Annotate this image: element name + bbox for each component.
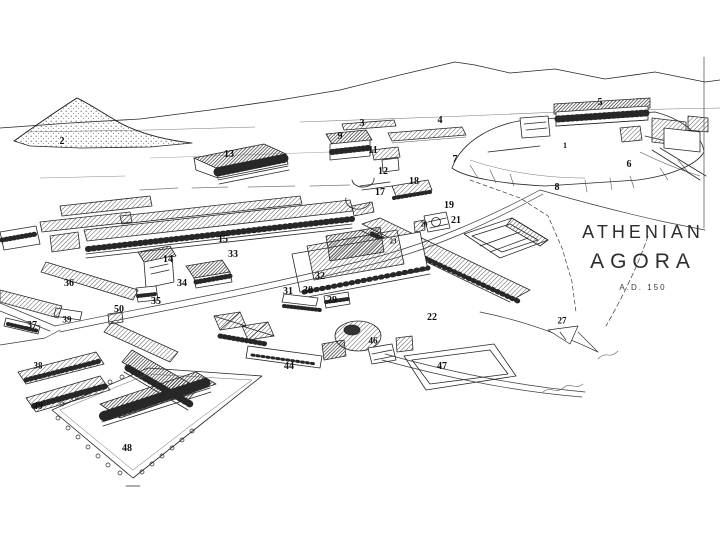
west-end-tower [138, 246, 176, 288]
map-title: ATHENIAN AGORA A.D. 150 [578, 222, 708, 292]
open-enclosure [404, 344, 516, 390]
title-subtitle: A.D. 150 [578, 283, 708, 292]
north-temples [326, 130, 400, 190]
title-line2: AGORA [578, 250, 708, 274]
hill [14, 98, 192, 148]
odeion [292, 227, 430, 298]
parthenon-temple [554, 98, 650, 126]
southwest-buildings [0, 260, 232, 334]
acropolis-hill [452, 98, 708, 192]
athenian-agora-map: 1234567891112131415171819202122232729303… [0, 0, 720, 540]
hip-roof-pavilions [214, 312, 274, 344]
central-small-buildings [346, 180, 450, 232]
temple-colonnade [194, 144, 289, 184]
courtyard-building [464, 218, 548, 258]
road-inscription [598, 351, 618, 359]
title-line1: ATHENIAN [578, 222, 708, 243]
